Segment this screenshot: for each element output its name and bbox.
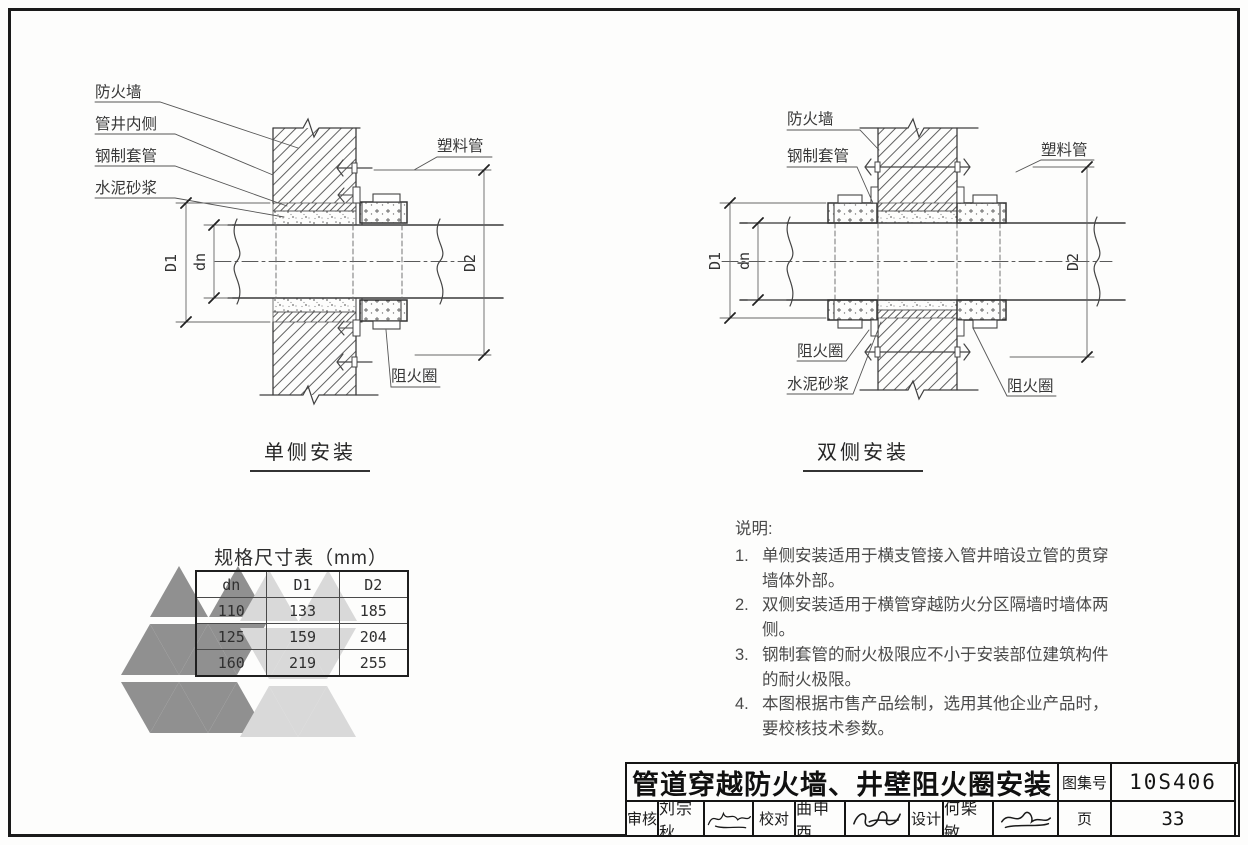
dim-dn: dn xyxy=(735,252,753,270)
table-cell: 185 xyxy=(339,598,408,624)
note-number: 2. xyxy=(735,593,749,618)
table-row: 110133185 xyxy=(196,598,408,624)
notes-section: 说明: 1.单侧安装适用于横支管接入管井暗设立管的贯穿墙体外部。2.双侧安装适用… xyxy=(735,517,1121,742)
table-cell: 125 xyxy=(196,624,266,650)
fire-collar-top xyxy=(360,202,407,223)
label-steel-sleeve: 钢制套管 xyxy=(787,147,849,165)
label-plastic-pipe: 塑料管 xyxy=(1041,141,1088,159)
fire-collar-bottom-left xyxy=(828,300,877,320)
signature-scribble xyxy=(998,806,1054,832)
caption-double-side: 双侧安装 xyxy=(803,436,923,472)
label-firewall: 防火墙 xyxy=(95,83,142,101)
watermark-triangle xyxy=(298,686,356,737)
note-text: 钢制套管的耐火极限应不小于安装部位建筑构件的耐火极限。 xyxy=(762,646,1109,689)
firewall-hatch-lower xyxy=(273,322,356,395)
signature-scribble xyxy=(850,806,904,832)
installation-detail-drawing: 防火墙 管井内侧 钢制套管 水泥砂浆 塑料管 阻火圈 D1 dn D2 xyxy=(80,75,1130,475)
table-row: 160219255 xyxy=(196,650,408,677)
dim-dn: dn xyxy=(191,253,209,271)
label-plastic-pipe: 塑料管 xyxy=(437,137,484,155)
spec-table-header-row: dnD1D2 xyxy=(196,571,408,598)
table-cell: 204 xyxy=(339,624,408,650)
label-steel-sleeve: 钢制套管 xyxy=(95,147,157,165)
note-item: 2.双侧安装适用于横管穿越防火分区隔墙时墙体两侧。 xyxy=(735,593,1121,643)
note-item: 3.钢制套管的耐火极限应不小于安装部位建筑构件的耐火极限。 xyxy=(735,643,1121,693)
sheet-title-cell: 管道穿越防火墙、井壁阻火圈安装 xyxy=(627,764,1059,802)
firewall-hatch-upper xyxy=(878,128,957,203)
note-number: 4. xyxy=(735,692,749,717)
table-cell: 255 xyxy=(339,650,408,677)
label-cement-mortar: 水泥砂浆 xyxy=(95,179,157,197)
note-item: 4.本图根据市售产品绘制，选用其他企业产品时，要校核技术参数。 xyxy=(735,692,1121,742)
steel-sleeve-band-bottom xyxy=(273,312,356,322)
designer-name: 何柴敏 xyxy=(944,802,992,837)
fire-collar-bottom-right xyxy=(957,300,1006,320)
table-cell: 133 xyxy=(266,598,339,624)
spec-table-title: 规格尺寸表（mm） xyxy=(195,543,407,570)
proofreader-label: 校对 xyxy=(759,808,789,829)
steel-sleeve-band-bottom xyxy=(878,310,957,318)
atlas-no-cell: 10S406 xyxy=(1112,764,1236,802)
firewall-hatch-upper xyxy=(273,128,356,203)
title-block: 管道穿越防火墙、井壁阻火圈安装 图集号 10S406 审核 刘宗秋 校对 曲申西 xyxy=(625,762,1238,835)
label-firewall: 防火墙 xyxy=(787,110,834,128)
label-fire-collar-left: 阻火圈 xyxy=(797,342,844,360)
firewall-hatch-lower xyxy=(878,318,957,390)
label-cement-mortar: 水泥砂浆 xyxy=(787,375,849,393)
table-cell: 110 xyxy=(196,598,266,624)
note-number: 1. xyxy=(735,544,749,569)
cement-mortar-band-top xyxy=(878,211,957,223)
reviewer-name: 刘宗秋 xyxy=(659,802,703,837)
cement-mortar-band-bottom xyxy=(273,298,356,312)
fire-collar-top-right xyxy=(957,203,1006,223)
collar-tab-top xyxy=(373,194,400,202)
reviewer-signature xyxy=(705,802,754,837)
sheet-title: 管道穿越防火墙、井壁阻火圈安装 xyxy=(632,764,1052,802)
label-shaft-inner: 管井内侧 xyxy=(95,115,157,133)
table-row: 125159204 xyxy=(196,624,408,650)
page-number: 33 xyxy=(1162,808,1185,830)
dim-d2: D2 xyxy=(1064,253,1082,271)
fire-collar-top-left xyxy=(828,203,877,223)
page-label: 页 xyxy=(1077,808,1092,829)
label-fire-collar: 阻火圈 xyxy=(391,367,438,385)
drawing-sheet: 防火墙 管井内侧 钢制套管 水泥砂浆 塑料管 阻火圈 D1 dn D2 xyxy=(0,0,1248,845)
table-cell: 160 xyxy=(196,650,266,677)
designer-signature xyxy=(994,802,1059,837)
dim-d1: D1 xyxy=(706,252,724,270)
cement-mortar-band-top xyxy=(273,211,356,225)
notes-heading: 说明: xyxy=(735,517,1121,542)
detail-double-side: 防火墙 钢制套管 塑料管 阻火圈 水泥砂浆 阻火圈 D1 dn D2 xyxy=(706,110,1125,399)
collar-tab-bottom xyxy=(373,321,400,329)
caption-single-side: 单侧安装 xyxy=(250,436,370,472)
note-number: 3. xyxy=(735,643,749,668)
atlas-no: 10S406 xyxy=(1129,770,1217,794)
spec-table-column-header: D2 xyxy=(339,571,408,598)
fire-collar-bottom xyxy=(360,300,407,321)
proofreader-signature xyxy=(846,802,910,837)
note-text: 本图根据市售产品绘制，选用其他企业产品时，要校核技术参数。 xyxy=(762,695,1109,738)
note-item: 1.单侧安装适用于横支管接入管井暗设立管的贯穿墙体外部。 xyxy=(735,544,1121,594)
steel-sleeve-band-top xyxy=(273,203,356,211)
label-fire-collar-right: 阻火圈 xyxy=(1007,377,1054,395)
signature-scribble xyxy=(706,806,752,832)
dim-d2: D2 xyxy=(461,254,479,272)
atlas-no-label-cell: 图集号 xyxy=(1059,764,1112,802)
note-text: 单侧安装适用于横支管接入管井暗设立管的贯穿墙体外部。 xyxy=(762,547,1109,590)
note-text: 双侧安装适用于横管穿越防火分区隔墙时墙体两侧。 xyxy=(762,596,1109,639)
spec-table: dnD1D2 110133185125159204160219255 xyxy=(195,570,409,677)
steel-sleeve-band-top xyxy=(878,203,957,211)
reviewer-label: 审核 xyxy=(627,808,657,829)
designer-label: 设计 xyxy=(911,808,941,829)
proofreader-name: 曲申西 xyxy=(796,802,844,837)
spec-table-column-header: D1 xyxy=(266,571,339,598)
table-cell: 219 xyxy=(266,650,339,677)
detail-single-side: 防火墙 管井内侧 钢制套管 水泥砂浆 塑料管 阻火圈 D1 dn D2 xyxy=(95,83,503,404)
dim-d1: D1 xyxy=(162,254,180,272)
spec-table-column-header: dn xyxy=(196,571,266,598)
cement-mortar-band-bottom xyxy=(878,300,957,310)
table-cell: 159 xyxy=(266,624,339,650)
atlas-no-label: 图集号 xyxy=(1062,772,1107,793)
